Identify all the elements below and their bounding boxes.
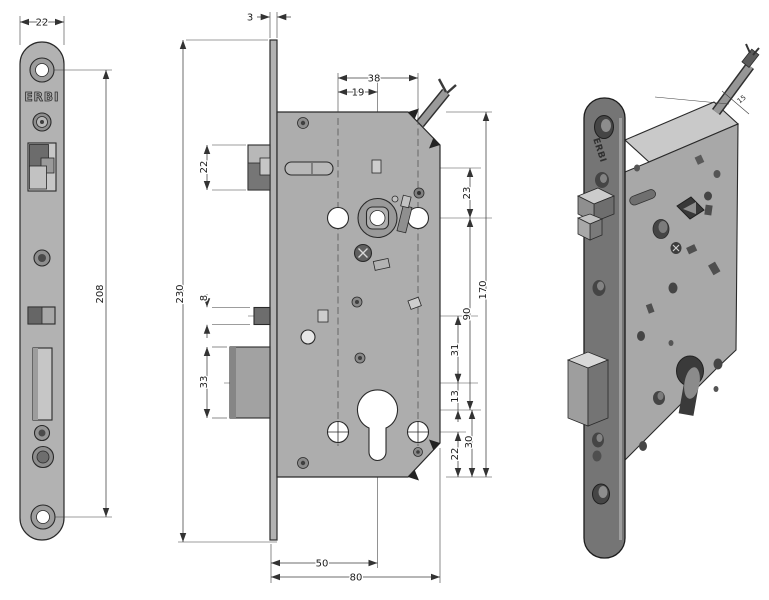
cable: [420, 79, 456, 124]
svg-text:80: 80: [350, 573, 363, 584]
round-hole: [637, 331, 645, 341]
deadbolt: [230, 347, 270, 418]
svg-text:90: 90: [462, 308, 473, 321]
deadbolt-3d: [568, 352, 608, 426]
latch-bolt: [248, 145, 270, 190]
svg-text:208: 208: [95, 284, 106, 303]
faceplate-edge: [270, 40, 277, 540]
svg-text:22: 22: [450, 448, 461, 461]
pin: [714, 386, 719, 392]
wire: [746, 44, 750, 53]
svg-text:22: 22: [36, 18, 49, 29]
svg-text:170: 170: [478, 280, 489, 299]
aux-bolt-front: [28, 307, 55, 324]
svg-text:31: 31: [450, 344, 461, 357]
spindle-follower: [358, 199, 397, 238]
svg-text:19: 19: [352, 88, 365, 99]
rivet: [714, 170, 721, 178]
dim-spindle-to-cylinder: 90: [462, 218, 473, 410]
dim-deadbolt-to-cylinder: 13: [450, 371, 461, 422]
dim-latch-height: 22: [199, 145, 246, 190]
svg-text:30: 30: [464, 436, 475, 449]
square-cutout: [372, 160, 381, 173]
dim-deadbolt-height: 33: [199, 347, 227, 418]
dim-plate-width: 22: [20, 16, 64, 45]
mounting-screw-left: [327, 421, 349, 443]
svg-text:15: 15: [736, 94, 748, 106]
svg-text:33: 33: [199, 376, 210, 389]
dim-spindle-offset: 19: [338, 88, 378, 99]
lock-drawing: ERBI 22: [0, 0, 769, 600]
dim-body-height: 170: [478, 112, 489, 477]
round-hole: [639, 441, 647, 451]
svg-text:3: 3: [247, 13, 253, 24]
svg-text:38: 38: [368, 74, 381, 85]
dim-body-depth: 80: [271, 573, 440, 584]
dim-plate-height: 230: [175, 40, 277, 542]
dim-backset: 50: [271, 559, 378, 570]
rivet: [634, 165, 640, 172]
drawing-canvas: ERBI 22: [0, 0, 769, 600]
round-hole: [669, 283, 678, 294]
dim-slot-to-spindle: 23: [462, 168, 473, 218]
deadbolt-slot-front: [33, 348, 52, 420]
aux-bolt: [254, 308, 270, 325]
pin: [392, 196, 398, 202]
dim-plate-thickness: 3: [247, 12, 291, 38]
svg-text:22: 22: [199, 161, 210, 174]
pin: [669, 340, 674, 346]
side-view: 3 230 22 8 33: [175, 12, 492, 584]
square-cutout: [318, 310, 328, 322]
pin-hole-3d: [593, 451, 602, 462]
latch-opening-front: [28, 143, 56, 191]
dim-aux-to-deadbolt: 31: [450, 316, 461, 383]
slot-cutout: [285, 162, 333, 175]
dim-aux-bolt: 8: [199, 294, 250, 338]
svg-text:8: 8: [199, 295, 210, 301]
svg-text:230: 230: [175, 284, 186, 303]
dim-screws-to-bottom: 22: [450, 432, 461, 477]
lever-3d: [704, 205, 712, 216]
front-view: ERBI 22: [20, 16, 112, 540]
iso-view: 15: [568, 44, 759, 558]
round-hole: [714, 359, 723, 370]
wire: [447, 85, 456, 93]
fixing-hole-left: [328, 208, 349, 229]
svg-text:23: 23: [462, 187, 473, 200]
svg-text:13: 13: [450, 390, 461, 403]
round-hole: [704, 192, 712, 201]
brand-text-front: ERBI: [24, 90, 59, 104]
round-hole: [301, 330, 315, 344]
svg-text:50: 50: [316, 559, 329, 570]
mounting-screw-right: [407, 421, 429, 443]
dim-cylinder-to-bottom: 30: [464, 410, 475, 477]
